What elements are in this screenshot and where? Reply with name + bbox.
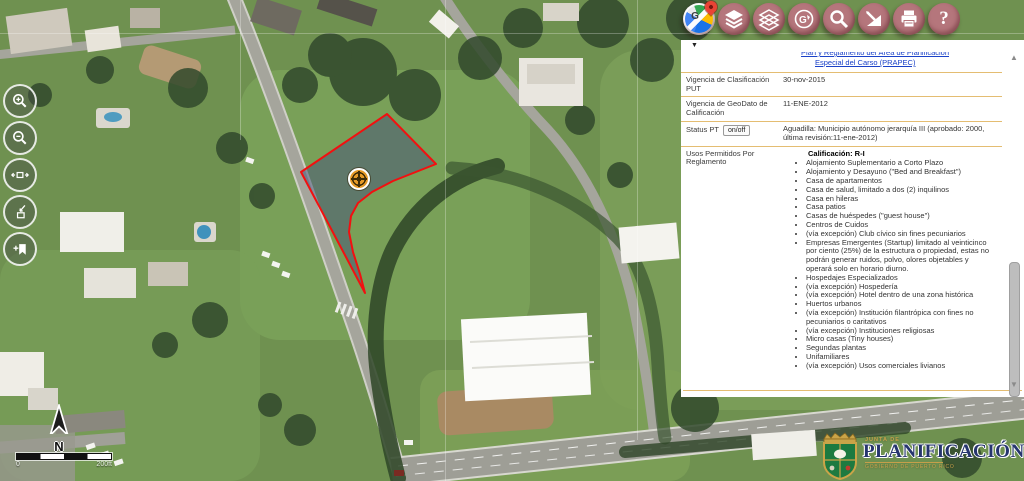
layers-solid-icon xyxy=(722,7,746,31)
extent-arrows-icon xyxy=(11,164,29,186)
gobierno-label: GOBIERNO DE PUERTO RICO xyxy=(865,464,1024,470)
row-value: Aguadilla: Municipio autónomo jerarquía … xyxy=(783,125,995,143)
zoom-in-icon xyxy=(11,90,29,112)
question-mark-icon: ? xyxy=(939,8,949,30)
printer-icon xyxy=(897,7,921,31)
row-value: 11-ENE-2012 xyxy=(783,100,995,118)
graticule-line xyxy=(445,0,446,481)
row-label: Status PTon/off xyxy=(681,125,783,143)
north-arrow-icon xyxy=(44,404,74,434)
google-g-glyph: G xyxy=(691,11,699,22)
row-label: Usos Permitidos Por Reglamento xyxy=(681,150,783,371)
list-item: Empresas Emergentes (Startup) limitado a… xyxy=(806,239,995,274)
panel-scrollbar: ▲ ▼ xyxy=(1006,52,1022,392)
extent-arrows-button[interactable] xyxy=(3,158,37,192)
row-value: 30-nov-2015 xyxy=(783,76,995,94)
status-pt-toggle[interactable]: on/off xyxy=(723,125,750,136)
scrollbar-thumb[interactable] xyxy=(1009,262,1020,397)
row-label: Vigencia de GeoDato de Calificación xyxy=(681,100,783,118)
logo-divider xyxy=(865,462,943,463)
prapec-link-line1[interactable]: Plan y Reglamento del Área de Planificac… xyxy=(801,52,949,58)
scroll-down-arrow[interactable]: ▼ xyxy=(1006,381,1022,390)
scale-min-label: 0 xyxy=(16,461,20,468)
list-item: (vía excepción) Usos comerciales liviano… xyxy=(806,362,995,371)
north-label: N xyxy=(40,439,78,454)
calificacion-title: Calificación: R-I xyxy=(808,150,995,159)
layer-list-button[interactable] xyxy=(753,3,785,35)
basemap-google-button[interactable]: G xyxy=(683,3,715,35)
row-label: Vigencia de Clasificación PUT xyxy=(681,76,783,94)
table-row: Vigencia de Clasificación PUT 30-nov-201… xyxy=(681,72,1002,97)
search-button[interactable] xyxy=(823,3,855,35)
print-button[interactable] xyxy=(893,3,925,35)
zoom-out-button[interactable] xyxy=(3,121,37,155)
north-arrow: N xyxy=(40,404,78,454)
zoom-out-icon xyxy=(11,127,29,149)
add-bookmark-icon xyxy=(11,238,29,260)
coat-of-arms-icon xyxy=(820,430,860,480)
search-icon xyxy=(827,7,851,31)
panel-collapse-handle[interactable]: ▼ xyxy=(681,40,1024,52)
list-item: (vía excepción) Institución filantrópica… xyxy=(806,309,995,327)
zoom-in-button[interactable] xyxy=(3,84,37,118)
planificacion-title: PLANIFICACIÓN xyxy=(863,443,1024,460)
prapec-link-block: Plan y Reglamento del Área de Planificac… xyxy=(681,52,1002,72)
scroll-up-arrow[interactable]: ▲ xyxy=(1006,54,1022,63)
prapec-link[interactable]: Especial del Carso (PRAPEC) xyxy=(815,59,915,68)
chevron-down-icon: ▼ xyxy=(691,42,698,51)
scale-bar-segments xyxy=(16,453,112,460)
app-window: N 0 200ft G xyxy=(0,0,1024,481)
table-row-usos: Usos Permitidos Por Reglamento Calificac… xyxy=(681,146,1002,374)
identify-marker xyxy=(348,168,370,190)
identify-select-button[interactable] xyxy=(3,195,37,229)
graticule-line xyxy=(637,0,638,440)
map-toolbar: G G xyxy=(683,3,960,35)
info-panel: ▼ Plan y Reglamento del Área de Planific… xyxy=(681,40,1024,397)
status-pt-label: Status PT xyxy=(686,125,719,134)
graticule-line xyxy=(240,0,241,140)
usos-list: Alojamiento Suplementario a Corto Plazo … xyxy=(795,159,995,370)
panel-content: Plan y Reglamento del Área de Planificac… xyxy=(681,52,1002,389)
identify-select-icon xyxy=(11,201,29,223)
globe-tools-button[interactable]: G xyxy=(788,3,820,35)
draw-measure-button[interactable] xyxy=(858,3,890,35)
table-row: Status PTon/off Aguadilla: Municipio aut… xyxy=(681,121,1002,146)
layers-button[interactable] xyxy=(718,3,750,35)
svg-text:G: G xyxy=(799,15,807,26)
table-row: Vigencia de GeoDato de Calificación 11-E… xyxy=(681,96,1002,121)
scale-bar: 0 200ft xyxy=(16,453,112,468)
layers-outline-icon xyxy=(757,7,781,31)
scale-max-label: 200ft xyxy=(96,461,112,468)
planning-board-logo: JUNTA DE PLANIFICACIÓN GOBIERNO DE PUERT… xyxy=(820,430,1024,481)
panel-bottom-divider xyxy=(683,390,1022,391)
draw-measure-icon xyxy=(862,7,886,31)
globe-icon: G xyxy=(792,7,816,31)
help-button[interactable]: ? xyxy=(928,3,960,35)
usos-value: Calificación: R-I Alojamiento Suplementa… xyxy=(783,150,995,371)
add-bookmark-button[interactable] xyxy=(3,232,37,266)
